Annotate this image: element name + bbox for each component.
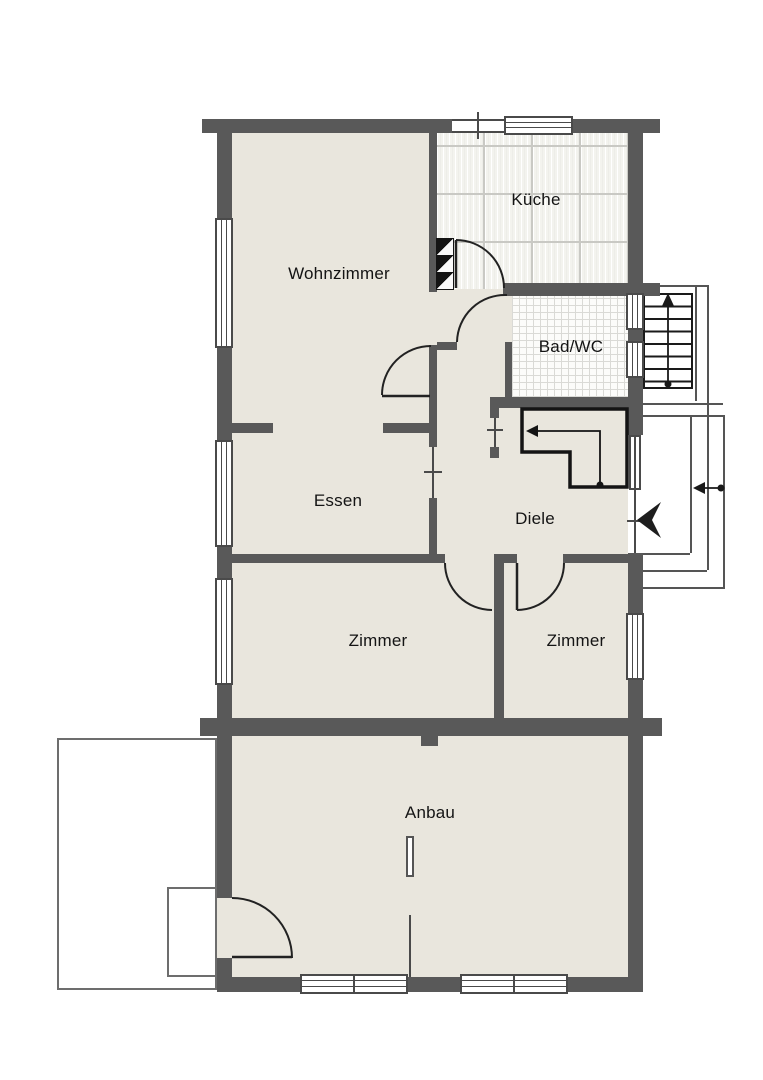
porch-step-2 xyxy=(643,570,707,572)
window-anbau-bottom-2 xyxy=(460,974,568,994)
wall-bath-bottom xyxy=(490,397,643,408)
alcove-cap-bottom xyxy=(490,447,499,458)
window-zimmer-left xyxy=(215,578,233,685)
window-hall-right xyxy=(629,435,641,490)
wall-hall-row-left xyxy=(217,554,445,563)
wall-right-1 xyxy=(628,133,643,296)
entrance-door-tick xyxy=(627,520,643,522)
wall-anbau-divider xyxy=(200,718,662,736)
glass-band-tick xyxy=(477,112,479,139)
porch-line-top-1 xyxy=(643,403,723,405)
room-label-zimmer-right: Zimmer xyxy=(547,631,606,651)
window-bath-right-1 xyxy=(626,293,644,330)
wall-top-left xyxy=(202,119,452,133)
wall-bath-door-stub xyxy=(437,342,457,350)
center-wall-glass-tick xyxy=(424,471,442,473)
wall-left-4 xyxy=(217,685,232,898)
window-anbau-bottom-1 xyxy=(300,974,408,994)
wall-bottom xyxy=(217,977,643,992)
chimney-cell-3 xyxy=(436,272,454,290)
room-label-diele: Diele xyxy=(515,509,555,529)
alcove-cap-top xyxy=(490,407,499,418)
room-label-bad: Bad/WC xyxy=(539,337,604,357)
chimney-cell-2 xyxy=(436,255,454,273)
wall-left-1 xyxy=(217,133,232,218)
wall-kitchen-bottom-cap xyxy=(643,283,660,296)
terrace-step-outline xyxy=(167,887,217,977)
chimney-cell-1 xyxy=(436,238,454,256)
window-bath-right-2 xyxy=(626,341,644,378)
window-zimmer-right xyxy=(626,613,644,680)
alcove-glass-tick xyxy=(487,429,503,431)
porch-line-v2 xyxy=(707,401,709,570)
wall-kitchen-bottom xyxy=(503,283,643,296)
wall-living-dining-stub-right xyxy=(383,423,429,433)
porch-step-1 xyxy=(643,553,690,555)
wall-living-dining-stub-left xyxy=(217,423,273,433)
exterior-stair-railing xyxy=(695,285,709,401)
wall-right-2 xyxy=(628,330,643,341)
window-living-left xyxy=(215,218,233,348)
porch-line-top-2 xyxy=(643,415,723,417)
room-label-essen: Essen xyxy=(314,491,362,511)
room-label-kueche: Küche xyxy=(511,190,560,210)
room-label-zimmer-left: Zimmer xyxy=(349,631,408,651)
room-label-anbau: Anbau xyxy=(405,803,455,823)
porch-line-v1 xyxy=(690,415,692,553)
anbau-partition-lower xyxy=(409,915,411,977)
wall-between-zimmer xyxy=(494,563,504,718)
wall-top-right xyxy=(573,119,660,133)
anbau-partition-upper xyxy=(406,836,414,877)
wall-hall-row-right xyxy=(563,554,643,563)
alcove-glass-line xyxy=(494,418,496,447)
kitchen-tile-floor xyxy=(437,133,628,289)
room-label-wohnzimmer: Wohnzimmer xyxy=(288,264,390,284)
wall-anbau-divider-nub xyxy=(421,736,438,746)
window-kitchen-top xyxy=(504,116,573,135)
window-dining-left xyxy=(215,440,233,547)
porch-line-v3 xyxy=(723,415,725,587)
porch-step-3 xyxy=(643,587,725,589)
wall-hall-row-mid xyxy=(494,554,517,563)
anbau-door-threshold xyxy=(217,898,232,958)
porch-walkline-arrowhead xyxy=(693,482,705,494)
wall-center-vertical-2 xyxy=(429,345,437,447)
floorplan-canvas: Wohnzimmer Küche Bad/WC Essen Diele Zimm… xyxy=(0,0,763,1080)
exterior-staircase xyxy=(643,293,693,389)
wall-bath-left xyxy=(505,342,512,397)
